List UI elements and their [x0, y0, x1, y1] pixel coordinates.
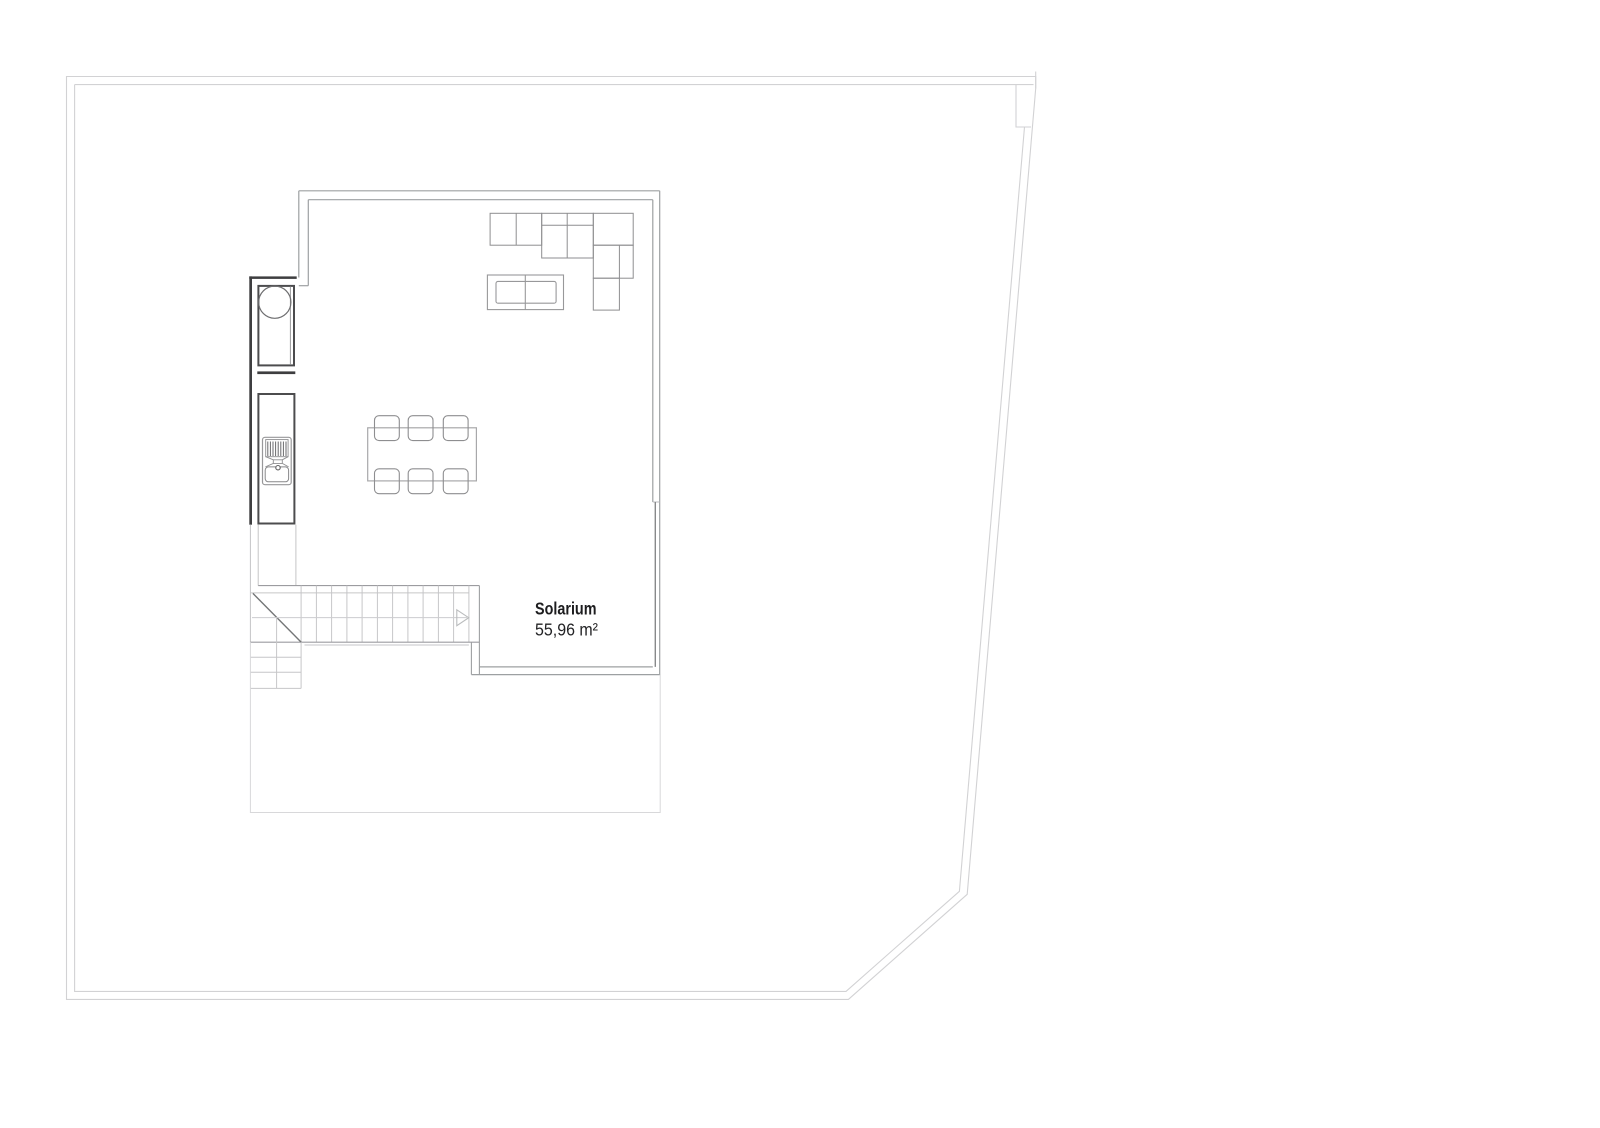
svg-text:Solarium: Solarium — [535, 599, 597, 619]
svg-text:55,96 m²: 55,96 m² — [535, 620, 598, 640]
